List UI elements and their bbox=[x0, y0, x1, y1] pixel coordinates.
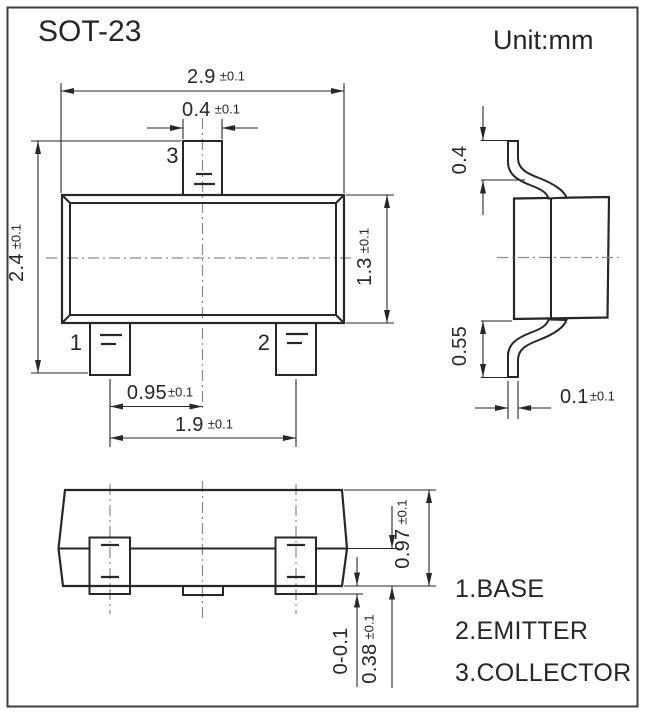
dim-pin-pitch-label: 0.95±0.1 bbox=[127, 382, 193, 404]
bottom-view: 0.97±0.1 0.38±0.1 0-0.1 bbox=[59, 481, 437, 688]
side-top-lead bbox=[508, 141, 567, 199]
page-title: SOT-23 bbox=[38, 15, 141, 48]
dim-lead-protrusion-label: 0-0.1 bbox=[330, 627, 352, 674]
dim-body-width-label: 2.9±0.1 bbox=[187, 66, 245, 88]
dim-top-lead-label: 0.4 bbox=[449, 146, 471, 175]
pin1-function: 1.BASE bbox=[455, 575, 544, 603]
dim-pad-height-label: 0.38±0.1 bbox=[359, 614, 381, 683]
side-view: 0.4 0.55 0.1±0.1 bbox=[449, 106, 623, 419]
side-bottom-lead bbox=[508, 320, 567, 378]
front-pin1 bbox=[90, 323, 130, 375]
front-pin2 bbox=[276, 323, 316, 375]
dim-body-depth-label: 0.97±0.1 bbox=[392, 499, 414, 568]
dim-lead-protrusion: 0-0.1 bbox=[317, 557, 363, 687]
pin-function-legend: 1.BASE 2.EMITTER 3.COLLECTOR bbox=[455, 575, 632, 687]
dim-pin-pitch: 0.95±0.1 bbox=[110, 379, 203, 447]
dim-body-height: 1.3±0.1 bbox=[346, 195, 394, 323]
dim-pin-span-label: 1.9±0.1 bbox=[175, 414, 233, 436]
dim-lead-thickness-label: 0.1±0.1 bbox=[560, 386, 615, 408]
dim-body-depth: 0.97±0.1 bbox=[344, 490, 436, 586]
front-view: 3 1 2 2.9±0.1 0.4±0.1 2.4±0.1 bbox=[6, 66, 394, 447]
dim-overall-height: 2.4±0.1 bbox=[6, 141, 181, 373]
pin3-number: 3 bbox=[166, 143, 178, 168]
pin1-number: 1 bbox=[70, 330, 82, 355]
pin-coplanarity-marks bbox=[100, 174, 308, 344]
sot23-package-drawing: SOT-23 Unit:mm 3 1 2 bbox=[0, 0, 645, 715]
dim-bottom-lead: 0.55 bbox=[449, 321, 512, 378]
unit-label: Unit:mm bbox=[493, 25, 594, 55]
dim-body-height-label: 1.3±0.1 bbox=[354, 228, 376, 286]
dim-lead-thickness: 0.1±0.1 bbox=[475, 381, 615, 419]
dim-bottom-lead-label: 0.55 bbox=[449, 326, 471, 366]
pin2-number: 2 bbox=[258, 330, 270, 355]
dim-overall-height-label: 2.4±0.1 bbox=[6, 224, 28, 282]
datasheet-page: SOT-23 Unit:mm 3 1 2 bbox=[0, 0, 645, 715]
pin2-function: 2.EMITTER bbox=[455, 617, 588, 645]
pin3-function: 3.COLLECTOR bbox=[455, 659, 632, 687]
dim-pin3-width-label: 0.4±0.1 bbox=[182, 99, 240, 121]
